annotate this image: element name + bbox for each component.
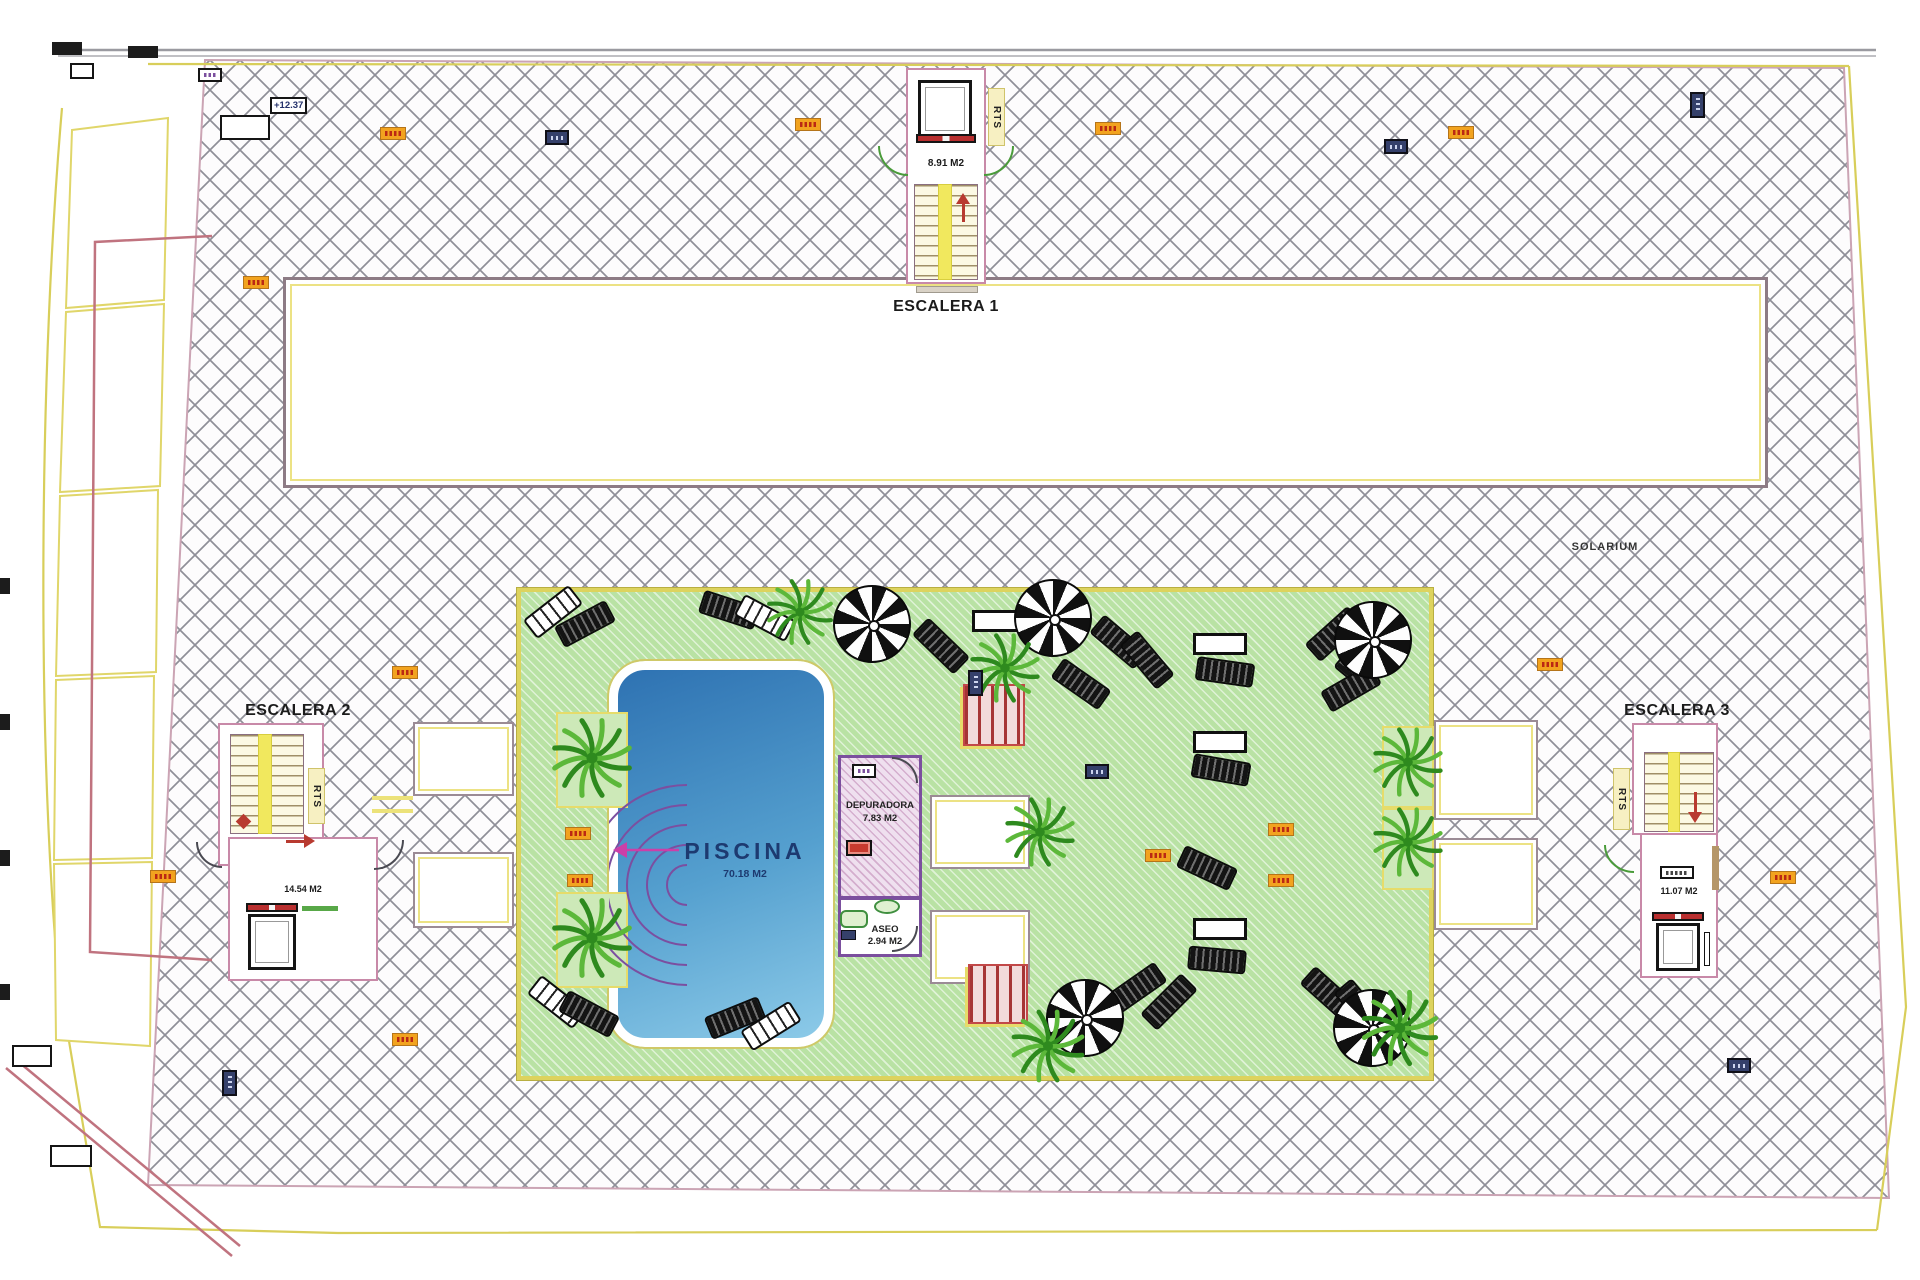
escalera3-down-arrow-icon xyxy=(1694,792,1697,820)
marker-orange-tag xyxy=(1268,823,1294,836)
marker-orange-tag xyxy=(1268,874,1294,887)
marker-navy-tag-vertical xyxy=(1690,92,1705,118)
palm-tree-icon xyxy=(1368,802,1448,882)
marker-white-box xyxy=(50,1145,92,1167)
escalera3-title: ESCALERA 3 xyxy=(1602,702,1752,720)
escalera1-title: ESCALERA 1 xyxy=(871,298,1021,316)
escalera3-stair-rail xyxy=(1668,752,1680,832)
escalera2-connector-line-2 xyxy=(372,809,413,813)
marker-orange-tag xyxy=(392,666,418,679)
palm-tree-icon xyxy=(546,892,638,984)
escalera1-elevator xyxy=(918,80,972,138)
floor-plan-canvas: RTS 8.91 M2 ESCALERA 1 ESCALERA 2 RTS 14… xyxy=(0,0,1920,1280)
escalera2-rts-shaft: RTS xyxy=(308,768,325,824)
marker-purple-tag xyxy=(852,764,876,778)
marker-black-label xyxy=(1660,866,1694,879)
escalera2-elevator-doors xyxy=(246,903,298,912)
marker-orange-tag xyxy=(1095,122,1121,135)
escalera3-elevator-doors xyxy=(1652,912,1704,921)
escalera3-wall-slat xyxy=(1704,932,1710,966)
marker-black-box xyxy=(0,714,10,730)
sink-icon xyxy=(874,899,900,914)
left-room-upper xyxy=(413,722,514,796)
marker-orange-tag xyxy=(380,127,406,140)
table-icon xyxy=(1193,918,1247,940)
courtyard-void xyxy=(283,277,1768,488)
escalera3-rts-shaft: RTS xyxy=(1613,768,1630,830)
marker-navy-tag xyxy=(1085,764,1109,779)
solarium-label: SOLARIUM xyxy=(1540,541,1670,553)
marker-orange-tag xyxy=(565,827,591,840)
escalera2-connector-line xyxy=(372,796,413,800)
palm-tree-icon xyxy=(546,712,638,804)
marker-purple-tag xyxy=(198,68,222,82)
marker-black-box xyxy=(0,578,10,594)
depuradora-area-label: 7.83 M2 xyxy=(838,813,922,824)
left-balcony-panels xyxy=(54,118,168,1046)
escalera3-area-label: 11.07 M2 xyxy=(1640,886,1718,896)
marker-orange-tag xyxy=(1770,871,1796,884)
marker-orange-tag xyxy=(1145,849,1171,862)
escalera2-stair-rail xyxy=(258,734,272,834)
left-room-lower xyxy=(413,852,514,928)
marker-orange-tag xyxy=(795,118,821,131)
palm-tree-icon xyxy=(762,574,838,650)
marker-black-box xyxy=(0,850,10,866)
escalera1-elevator-doors xyxy=(916,134,976,143)
palm-tree-icon xyxy=(1368,722,1448,802)
marker-orange-tag xyxy=(1537,658,1563,671)
marker-orange-tag xyxy=(567,874,593,887)
marker-white-box xyxy=(70,63,94,79)
marker-orange-tag xyxy=(243,276,269,289)
escalera3-wood-bar xyxy=(1712,846,1719,890)
palm-tree-icon xyxy=(1006,1004,1090,1088)
marker-navy-tag xyxy=(1384,139,1408,154)
aseo-area-label: 2.94 M2 xyxy=(848,936,922,947)
table-icon xyxy=(1193,633,1247,655)
pool-area-label: 70.18 M2 xyxy=(645,868,845,880)
depuradora-title: DEPURADORA xyxy=(838,800,922,811)
marker-navy-tag-vertical xyxy=(222,1070,237,1096)
escalera1-stair-rail xyxy=(938,184,952,280)
marker-orange-tag xyxy=(392,1033,418,1046)
marker-navy-tag-vertical xyxy=(968,670,983,696)
right-room-upper xyxy=(1434,720,1538,820)
marker-black-box xyxy=(0,984,10,1000)
palm-tree-icon xyxy=(965,628,1045,708)
palm-tree-icon xyxy=(1000,792,1080,872)
marker-black-box xyxy=(52,42,82,55)
escalera3-elevator xyxy=(1656,923,1700,971)
elevation-marker: +12.37 xyxy=(270,97,307,114)
marker-white-box xyxy=(220,115,270,140)
escalera2-green-threshold xyxy=(302,906,338,911)
marker-black-box xyxy=(128,46,158,58)
pump-icon xyxy=(846,840,872,856)
palm-tree-icon xyxy=(1356,984,1444,1072)
marker-navy-tag xyxy=(545,130,569,145)
marker-orange-tag xyxy=(150,870,176,883)
sun-lounger-icon xyxy=(1187,946,1247,975)
escalera2-right-arrow-icon xyxy=(286,840,312,843)
escalera1-up-arrow-icon xyxy=(962,196,965,222)
escalera1-threshold xyxy=(916,286,978,293)
escalera2-title: ESCALERA 2 xyxy=(223,702,373,720)
aseo-title: ASEO xyxy=(848,924,922,935)
marker-white-box xyxy=(12,1045,52,1067)
parasol-icon xyxy=(1334,601,1412,679)
escalera1-rts-shaft: RTS xyxy=(988,88,1005,146)
escalera2-area-label: 14.54 M2 xyxy=(228,884,378,894)
right-room-lower xyxy=(1434,838,1538,930)
escalera1-area-label: 8.91 M2 xyxy=(906,158,986,169)
pool-title: PISCINA xyxy=(645,838,845,865)
marker-orange-tag xyxy=(1448,126,1474,139)
parasol-icon xyxy=(833,585,911,663)
marker-navy-tag-small xyxy=(841,930,856,940)
table-icon xyxy=(1193,731,1247,753)
escalera2-elevator xyxy=(248,914,296,970)
marker-navy-tag xyxy=(1727,1058,1751,1073)
